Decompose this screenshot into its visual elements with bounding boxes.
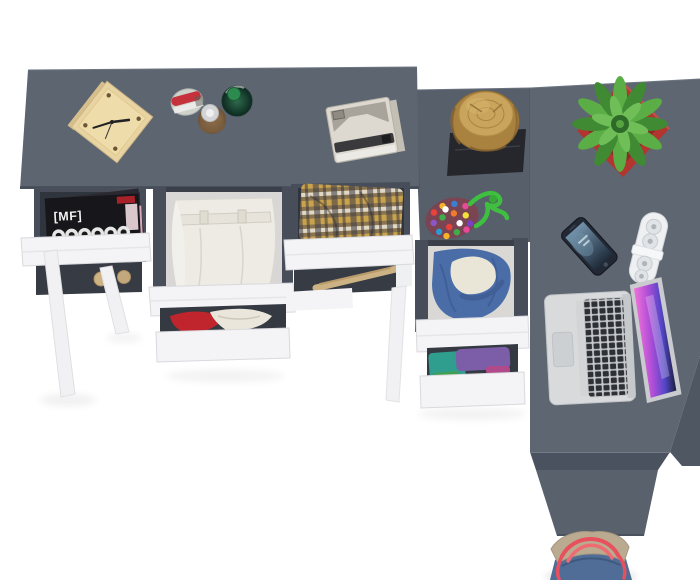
tote-bag [550,532,632,580]
plaid-shirt [299,183,404,244]
product-photo: [MF] [0,0,700,580]
magazine-photo [125,204,138,231]
folded-clothes-drawer [420,344,525,408]
hoodie-drawer [415,238,529,352]
stump-top-face [459,92,513,136]
bottle-cap [228,88,241,101]
plant-center-bud [616,120,624,128]
magazine-drawer: [MF] [21,188,151,295]
laptop [544,276,682,408]
drawer-shadow [417,408,527,420]
magazine-red-tag [117,196,135,204]
instant-camera [326,96,406,163]
log-stool [451,91,519,151]
folded-pants [172,198,276,294]
drawer-shadow [165,370,285,382]
desk-front-band [530,452,670,470]
wooden-hanger [118,271,131,284]
cap-glint [206,109,214,117]
camera-viewfinder [332,110,344,120]
camera-button [381,134,391,143]
pants-belt-loop [200,211,208,224]
pants-belt-loop [238,210,246,223]
drawer-rail [415,240,430,332]
cord-knot [489,195,497,203]
laptop-trackpad [552,332,574,367]
magazine-masthead: [MF] [53,209,82,224]
pants-drawer [149,187,295,316]
desk-side-panel [536,470,658,536]
leg-shadow [106,334,142,342]
lower-drawer-front-edge [286,288,353,311]
drawer-rail [153,187,168,303]
scene-canvas: [MF] [0,0,700,580]
stump-highlight [466,98,490,114]
perfume-green-bottle [222,86,252,116]
drawer-front [420,372,525,408]
laptop-keyboard [583,297,628,397]
red-clothes-drawer [156,304,290,362]
drawer-front [156,328,290,362]
